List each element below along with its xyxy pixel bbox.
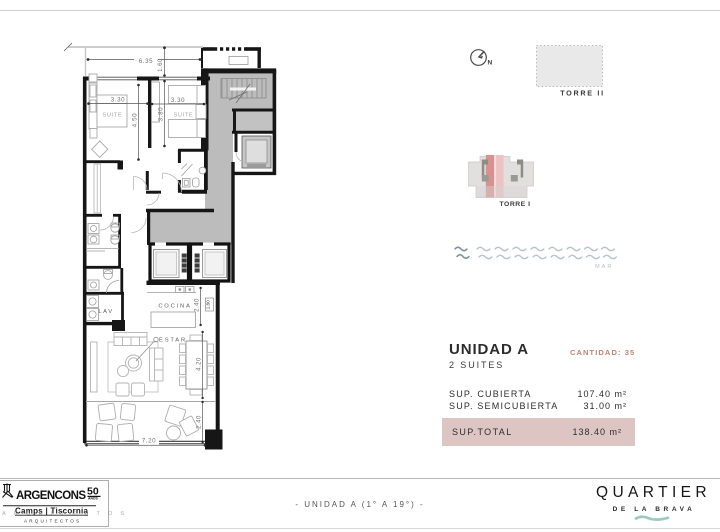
- svg-text:A R Q U I T E C T O S: A R Q U I T E C T O S: [2, 511, 128, 517]
- svg-text:ARQUITECTOS: ARQUITECTOS: [24, 519, 81, 524]
- svg-text:3.80: 3.80: [157, 107, 164, 121]
- svg-text:1.80: 1.80: [206, 300, 211, 309]
- svg-text:3.30: 3.30: [171, 97, 185, 104]
- svg-text:4.20: 4.20: [197, 357, 203, 371]
- svg-text:SUITE: SUITE: [103, 112, 123, 118]
- svg-text:ARGENCONS: ARGENCONS: [16, 490, 86, 502]
- svg-text:COCINA: COCINA: [158, 304, 191, 310]
- svg-text:LAV: LAV: [98, 309, 113, 315]
- svg-text:4.50: 4.50: [131, 113, 138, 127]
- svg-text:1.60: 1.60: [158, 58, 164, 72]
- svg-text:ESTAR: ESTAR: [159, 338, 187, 344]
- svg-text:MAR: MAR: [595, 264, 613, 270]
- svg-text:3.30: 3.30: [111, 96, 125, 103]
- svg-text:TORRE II: TORRE II: [560, 89, 605, 98]
- svg-text:7.20: 7.20: [142, 438, 156, 445]
- svg-text:N: N: [488, 60, 493, 67]
- svg-text:TORRE I: TORRE I: [500, 201, 531, 208]
- svg-text:6.35: 6.35: [139, 58, 153, 65]
- svg-text:2.40: 2.40: [195, 298, 201, 312]
- svg-text:2.40: 2.40: [197, 415, 203, 429]
- svg-text:SUITE: SUITE: [174, 112, 194, 118]
